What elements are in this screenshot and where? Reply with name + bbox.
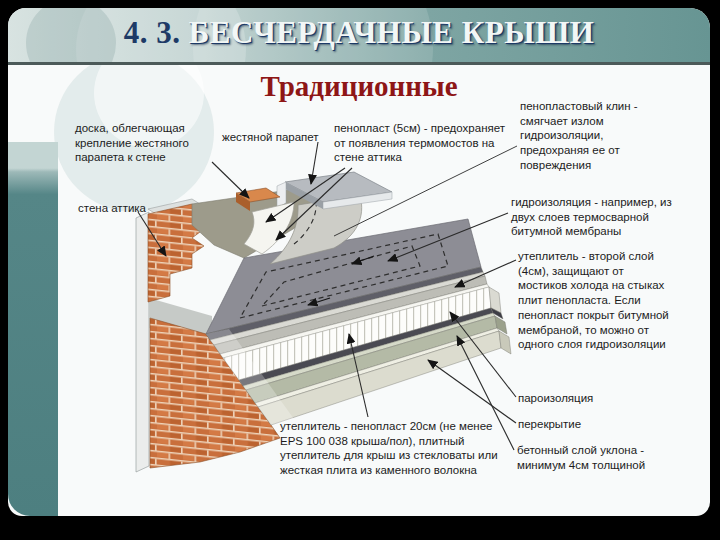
roof-construction-diagram [0, 0, 720, 540]
slide-frame: 4. 3. БЕСЧЕРДАЧНЫЕ КРЫШИ Традиционные [0, 0, 720, 540]
plaster-layer [136, 212, 149, 472]
arrow-board [212, 162, 249, 198]
arrow-floor-slab [428, 360, 516, 423]
